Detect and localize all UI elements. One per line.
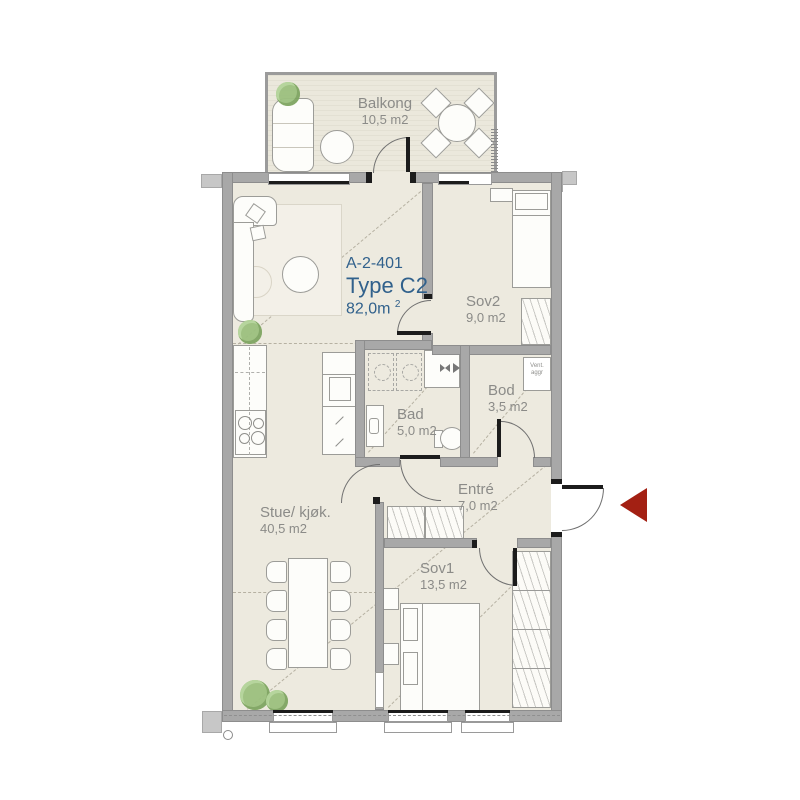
wall-bad-bod — [460, 345, 470, 467]
apartment-type: Type C2 — [346, 273, 428, 298]
wall-left — [222, 172, 233, 722]
island-divider — [323, 374, 357, 375]
room-name: Entré — [458, 482, 498, 499]
wall-stub — [562, 171, 577, 185]
shower-arrow-icon — [453, 363, 460, 373]
room-name: Bad — [397, 407, 437, 424]
dryer-outline — [396, 353, 422, 391]
wall-stub — [202, 711, 222, 733]
dining-table — [288, 558, 328, 668]
room-name: Sov2 — [466, 294, 506, 311]
room-area: 10,5 m2 — [332, 113, 438, 128]
entrance-door-opening — [551, 484, 562, 532]
window-frame — [465, 710, 510, 713]
room-label-sov1: Sov1 13,5 m2 — [420, 561, 467, 592]
wall-sov1-top — [384, 538, 477, 548]
plant — [238, 320, 262, 344]
island-divider — [323, 406, 357, 407]
plant — [240, 680, 270, 710]
wall-right — [551, 172, 562, 722]
sov2-door-leaf — [397, 331, 431, 335]
wall-sov1-top — [517, 538, 551, 548]
room-area: 13,5 m2 — [420, 578, 467, 593]
sov2-shelf — [490, 188, 513, 202]
plant — [266, 690, 288, 712]
dining-chair — [330, 590, 351, 612]
window-frame — [388, 710, 448, 713]
burner — [238, 416, 252, 430]
room-label-stue: Stue/ kjøk. 40,5 m2 — [260, 505, 331, 536]
room-label-balkong: Balkong 10,5 m2 — [332, 96, 438, 127]
washer-drum — [374, 364, 391, 381]
wall-sov2-bod — [432, 345, 551, 355]
dining-chair — [266, 561, 287, 583]
window-frame — [273, 710, 333, 713]
door-jamb — [551, 532, 562, 537]
entrance-arrow-icon — [620, 488, 647, 522]
balcony-door-opening — [372, 172, 410, 183]
island-sink — [329, 377, 351, 401]
sov1-pillow — [403, 608, 418, 641]
bad-door-leaf — [400, 455, 440, 459]
sov1-wardrobe — [512, 551, 551, 708]
room-area: 5,0 m2 — [397, 424, 437, 439]
apartment-area: 82,0m 2 — [346, 299, 428, 319]
sov2-pillow — [515, 193, 548, 210]
room-name: Balkong — [332, 96, 438, 113]
room-label-sov2: Sov2 9,0 m2 — [466, 294, 506, 325]
window — [465, 712, 510, 722]
washer-outline — [368, 353, 394, 391]
door-jamb — [410, 172, 416, 183]
sov2-wardrobe — [521, 298, 551, 345]
nightstand — [383, 643, 399, 665]
entrance-door-swing — [562, 488, 604, 531]
door-jamb — [472, 540, 477, 548]
window-sill — [269, 722, 337, 733]
room-label-bad: Bad 5,0 m2 — [397, 407, 437, 438]
dining-chair — [330, 648, 351, 670]
dining-chair — [330, 619, 351, 641]
wall-centerline — [224, 715, 560, 716]
wall-bad-top — [355, 340, 432, 350]
apartment-id: A-2-401 — [346, 255, 428, 273]
dining-chair — [266, 648, 287, 670]
window — [388, 712, 448, 722]
dining-chair — [266, 619, 287, 641]
sov2-blanket-line — [513, 215, 550, 216]
window-frame — [269, 181, 349, 184]
apartment-area-exponent: 2 — [395, 299, 401, 310]
apartment-area-value: 82,0m — [346, 300, 390, 317]
window — [273, 712, 333, 722]
nightstand — [383, 588, 399, 610]
room-name: Bod — [488, 383, 528, 400]
sov1-pillow — [403, 652, 418, 685]
floor-plan: Vent. aggr Balkong 10,5 m2 A-2-401 Type … — [0, 0, 800, 800]
dryer-drum — [402, 364, 419, 381]
balcony-side-table — [320, 130, 354, 164]
sov1-blanket-line — [422, 604, 423, 710]
window-frame — [439, 181, 469, 184]
apartment-label: A-2-401 Type C2 82,0m 2 — [346, 255, 428, 318]
burner — [239, 433, 250, 444]
sink-basin — [369, 418, 379, 434]
balcony-sofa — [272, 98, 314, 172]
door-jamb — [551, 479, 562, 484]
wall-hall — [533, 457, 551, 467]
burner — [251, 431, 265, 445]
room-area: 7,0 m2 — [458, 499, 498, 514]
bod-door-leaf — [497, 419, 501, 457]
shower-valve-icon — [445, 364, 450, 372]
room-name: Stue/ kjøk. — [260, 505, 331, 522]
room-label-bod: Bod 3,5 m2 — [488, 383, 528, 414]
wall-hall — [440, 457, 498, 467]
dining-chair — [266, 590, 287, 612]
wall-stub — [201, 174, 222, 188]
balcony-table — [438, 104, 476, 142]
entrance-door-leaf — [562, 485, 603, 489]
wall-bad-left — [355, 340, 365, 467]
window-sill — [461, 722, 514, 733]
door-hinge — [373, 497, 380, 504]
window-sill — [384, 722, 452, 733]
counter-divider — [235, 372, 265, 373]
balcony-door-leaf — [406, 137, 410, 172]
room-label-entre: Entré 7,0 m2 — [458, 482, 498, 513]
coffee-table — [282, 256, 319, 293]
room-name: Sov1 — [420, 561, 467, 578]
door-jamb — [366, 172, 372, 183]
dining-chair — [330, 561, 351, 583]
room-area: 40,5 m2 — [260, 522, 331, 537]
burner — [253, 418, 264, 429]
survey-point — [223, 730, 233, 740]
balcony-edge-hatch — [491, 128, 498, 172]
plant — [276, 82, 300, 106]
sov1-door-leaf — [513, 548, 517, 586]
wall-niche — [375, 672, 384, 708]
room-area: 9,0 m2 — [466, 311, 506, 326]
room-area: 3,5 m2 — [488, 400, 528, 415]
sofa-cushion — [250, 225, 267, 242]
